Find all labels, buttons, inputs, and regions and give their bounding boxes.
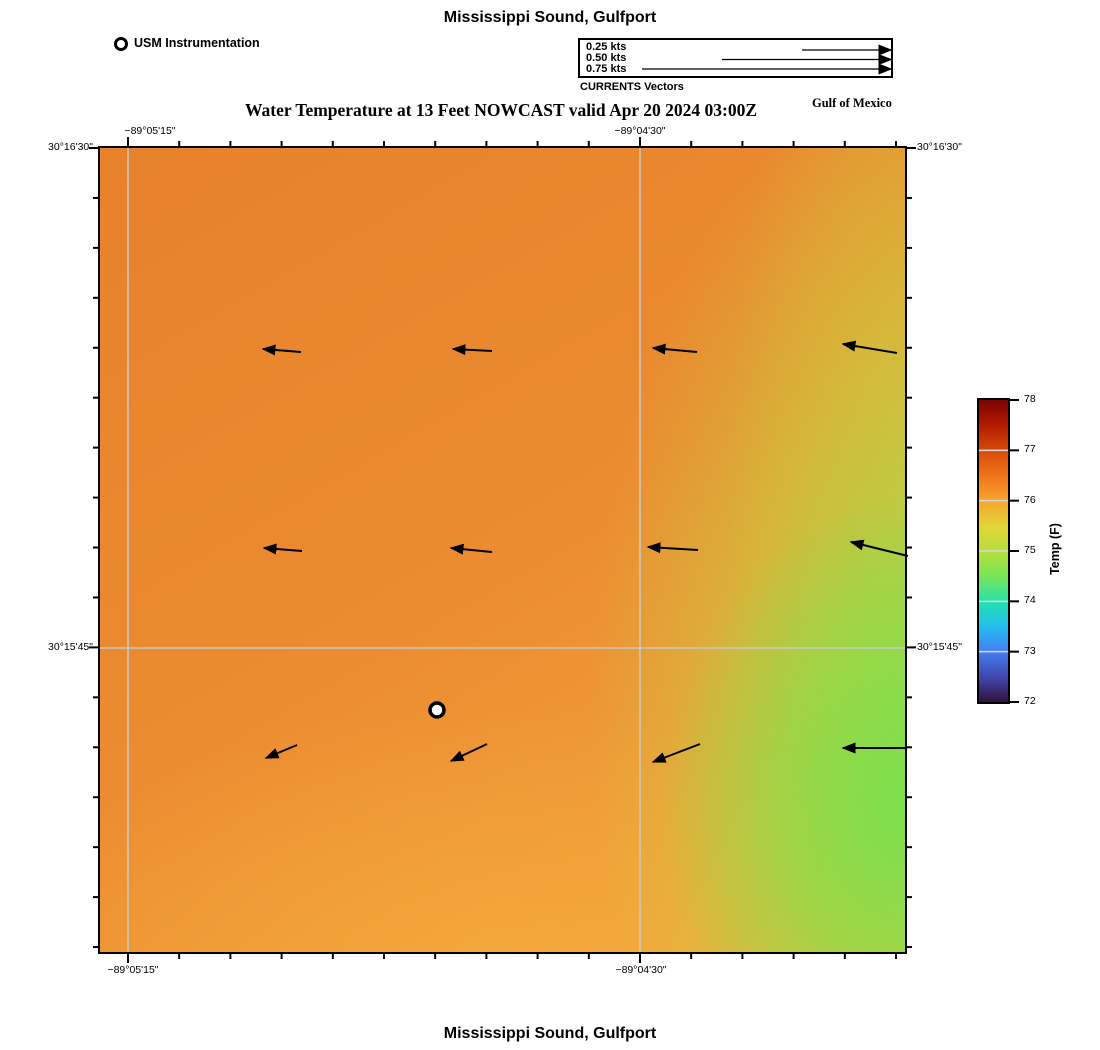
latitude-label-right: 30°16'30" — [917, 141, 992, 153]
colorbar-tick-label: 72 — [1024, 695, 1036, 707]
figure-canvas: Mississippi Sound, Gulfport USM Instrume… — [0, 0, 1100, 1050]
currents-legend-caption: CURRENTS Vectors — [580, 81, 684, 93]
currents-legend-entry-075: 0.75 kts — [586, 64, 626, 75]
figure-subtitle: Water Temperature at 13 Feet NOWCAST val… — [0, 100, 1002, 121]
latitude-label-left: 30°15'45" — [18, 641, 93, 653]
colorbar — [977, 398, 1010, 704]
colorbar-axis-label: Temp (F) — [1048, 489, 1064, 609]
figure-title-top: Mississippi Sound, Gulfport — [0, 9, 1100, 27]
longitude-label-top: −89°04'30" — [595, 125, 685, 137]
colorbar-tick-label: 76 — [1024, 494, 1036, 506]
currents-legend-box: 0.25 kts 0.50 kts 0.75 kts — [578, 38, 893, 78]
temperature-map-field — [100, 148, 905, 952]
instrumentation-legend-label: USM Instrumentation — [134, 36, 260, 50]
colorbar-tick-label: 78 — [1024, 393, 1036, 405]
colorbar-tick-label: 75 — [1024, 544, 1036, 556]
latitude-label-left: 30°16'30" — [18, 141, 93, 153]
colorbar-tick-label: 77 — [1024, 443, 1036, 455]
figure-title-bottom: Mississippi Sound, Gulfport — [0, 1025, 1100, 1043]
latitude-label-right: 30°15'45" — [917, 641, 992, 653]
station-circle-icon — [114, 37, 128, 51]
colorbar-tick-label: 74 — [1024, 594, 1036, 606]
longitude-label-top: −89°05'15" — [105, 125, 195, 137]
longitude-label-bottom: −89°04'30" — [596, 964, 686, 976]
colorbar-tick-label: 73 — [1024, 645, 1036, 657]
longitude-label-bottom: −89°05'15" — [88, 964, 178, 976]
